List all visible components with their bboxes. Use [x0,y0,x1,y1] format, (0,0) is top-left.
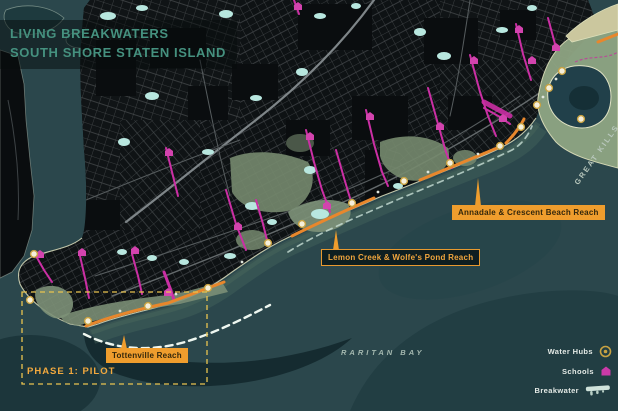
legend-item-breakwater: Breakwater [535,384,612,397]
label-lemon-creek-reach: Lemon Creek & Wolfe's Pond Reach [321,249,480,266]
school-icon [600,365,612,377]
legend-label-water-hubs: Water Hubs [548,347,593,356]
map-title: LIVING BREAKWATERS SOUTH SHORE STATEN IS… [0,20,237,69]
label-annadale-reach: Annadale & Crescent Beach Reach [452,205,605,220]
legend-item-water-hubs: Water Hubs [548,345,612,358]
label-tottenville-reach: Tottenville Reach [106,348,188,363]
label-phase1-pilot: PHASE 1: PILOT [27,366,115,377]
map-title-line1: LIVING BREAKWATERS [10,25,226,44]
water-hub-icon [599,345,612,358]
label-raritan-bay: RARITAN BAY [341,348,425,357]
legend-label-schools: Schools [562,367,594,376]
map-title-line2: SOUTH SHORE STATEN ISLAND [10,44,226,63]
breakwater-icon [585,383,613,398]
map-poster: LIVING BREAKWATERS SOUTH SHORE STATEN IS… [0,0,618,411]
legend-item-schools: Schools [562,365,612,377]
legend-label-breakwater: Breakwater [535,386,579,395]
legend: Water Hubs Schools Breakwater [535,345,612,397]
